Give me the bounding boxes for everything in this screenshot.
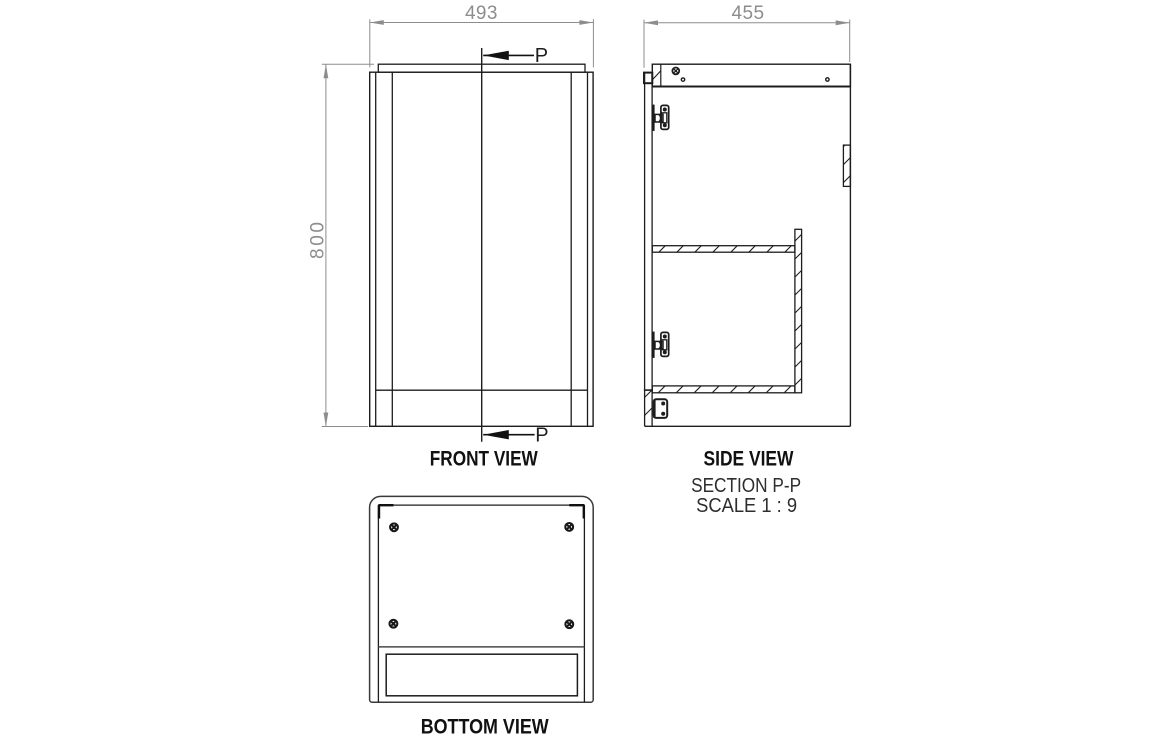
svg-text:493: 493 — [465, 3, 498, 24]
svg-text:SIDE VIEW: SIDE VIEW — [704, 447, 794, 470]
svg-text:800: 800 — [307, 219, 328, 259]
svg-text:SCALE 1 : 9: SCALE 1 : 9 — [696, 495, 797, 517]
svg-text:P: P — [535, 45, 548, 67]
svg-text:SECTION P-P: SECTION P-P — [691, 475, 801, 497]
svg-text:455: 455 — [732, 3, 765, 24]
svg-text:P: P — [535, 424, 548, 446]
svg-text:FRONT VIEW: FRONT VIEW — [430, 447, 538, 470]
svg-text:BOTTOM VIEW: BOTTOM VIEW — [421, 716, 549, 739]
